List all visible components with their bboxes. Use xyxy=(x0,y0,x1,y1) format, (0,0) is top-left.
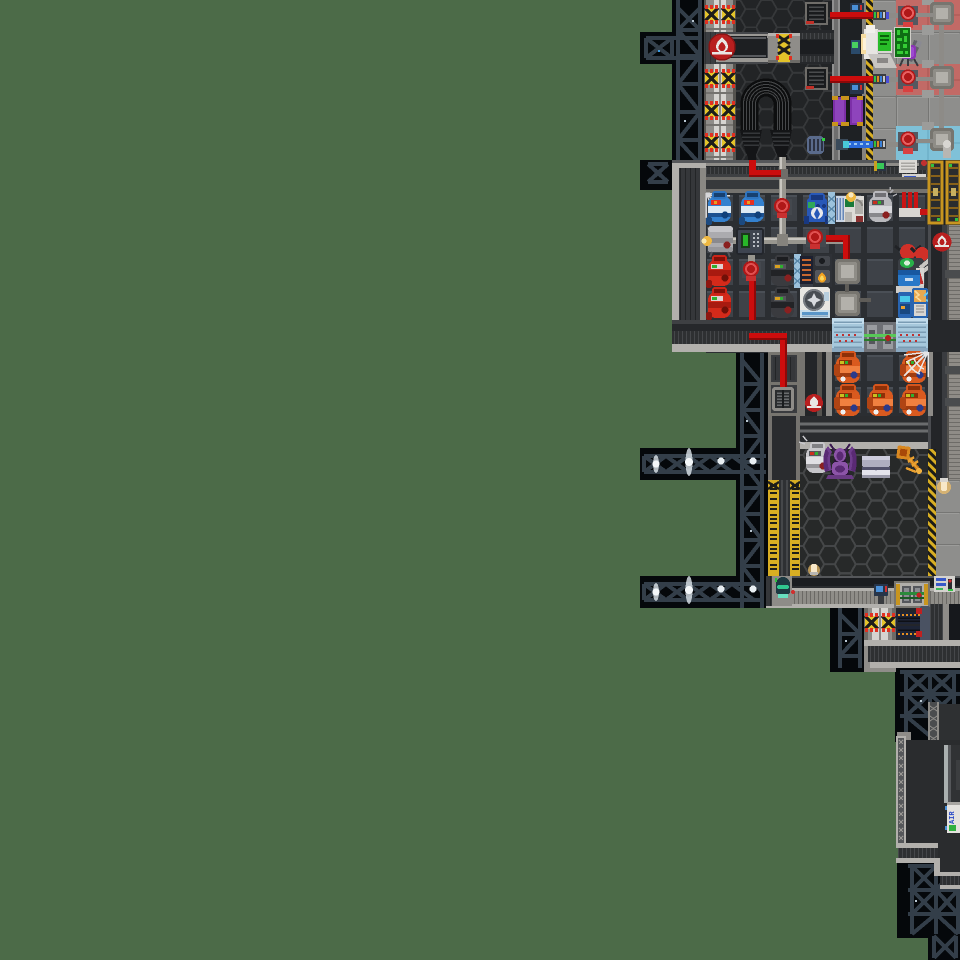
svg-text:AIR: AIR xyxy=(949,811,957,824)
